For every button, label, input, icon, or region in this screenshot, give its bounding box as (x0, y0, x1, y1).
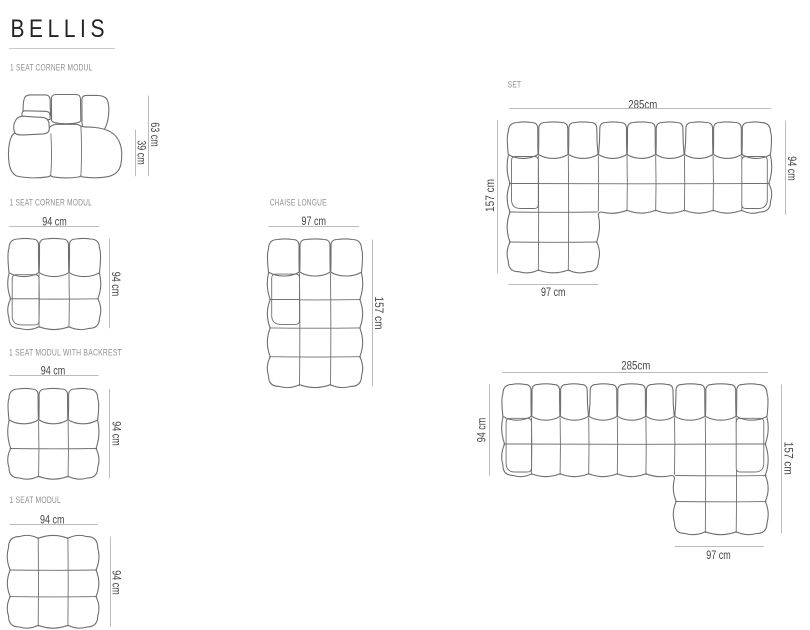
svg-text:CHAISE LONGUE: CHAISE LONGUE (270, 198, 327, 208)
svg-text:BELLIS: BELLIS (11, 15, 110, 43)
svg-text:SET: SET (508, 79, 522, 89)
svg-text:94 cm: 94 cm (109, 272, 121, 297)
svg-text:1 SEAT CORNER MODUL: 1 SEAT CORNER MODUL (10, 63, 93, 73)
svg-text:157 cm: 157 cm (372, 297, 384, 330)
svg-text:97 cm: 97 cm (706, 550, 731, 562)
svg-text:94 cm: 94 cm (476, 418, 488, 443)
svg-text:94 cm: 94 cm (109, 421, 121, 446)
svg-text:94 cm: 94 cm (110, 570, 122, 595)
svg-text:39 cm: 39 cm (135, 140, 147, 165)
svg-text:157 cm: 157 cm (485, 179, 497, 212)
svg-text:97 cm: 97 cm (541, 287, 566, 299)
svg-text:94 cm: 94 cm (785, 156, 797, 181)
svg-text:157 cm: 157 cm (782, 442, 794, 475)
svg-text:285cm: 285cm (628, 99, 657, 111)
svg-text:1 SEAT CORNER MODUL: 1 SEAT CORNER MODUL (10, 198, 93, 208)
svg-text:1 SEAT MODUL: 1 SEAT MODUL (10, 495, 62, 505)
svg-text:63 cm: 63 cm (148, 122, 160, 147)
svg-text:1 SEAT MODUL WITH BACKREST: 1 SEAT MODUL WITH BACKREST (9, 347, 122, 357)
svg-text:285cm: 285cm (621, 361, 650, 373)
